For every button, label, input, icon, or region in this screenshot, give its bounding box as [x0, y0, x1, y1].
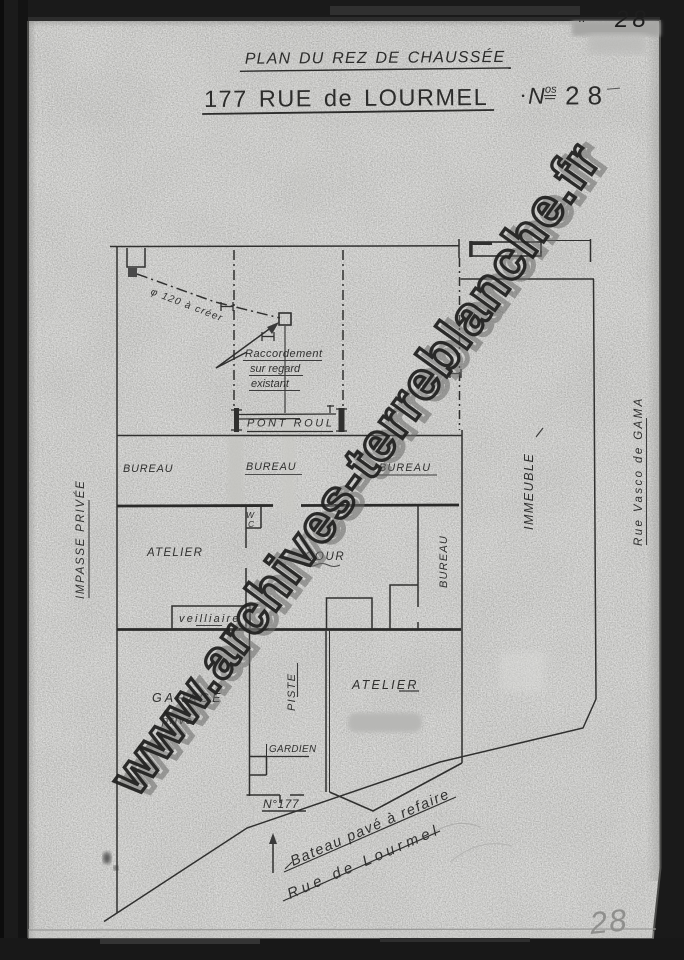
svg-text:IMPASSE PRIVÉE: IMPASSE PRIVÉE: [74, 480, 87, 599]
svg-text:GARDIEN: GARDIEN: [269, 744, 317, 755]
svg-text:28: 28: [565, 80, 610, 110]
svg-text:Raccordement: Raccordement: [245, 348, 323, 360]
svg-text:Rue Vasco de GAMA: Rue Vasco de GAMA: [633, 396, 645, 546]
svg-text:IMMEUBLE: IMMEUBLE: [522, 453, 536, 530]
svg-text:BUREAU: BUREAU: [123, 463, 173, 475]
svg-text:BUREAU: BUREAU: [246, 461, 296, 473]
svg-text:N: N: [528, 83, 545, 109]
svg-text:PISTE: PISTE: [286, 673, 298, 711]
svg-text:28: 28: [587, 902, 630, 941]
svg-text:sur regard: sur regard: [250, 363, 301, 375]
svg-text:N°177: N°177: [263, 797, 300, 811]
svg-text:existant: existant: [251, 378, 290, 390]
svg-text:C: C: [248, 519, 255, 529]
svg-text:BUREAU: BUREAU: [438, 535, 450, 588]
svg-text:ATELIER: ATELIER: [146, 547, 203, 559]
svg-text:PLAN DU REZ DE CHAUSSÉE: PLAN DU REZ DE CHAUSSÉE: [245, 47, 506, 68]
svg-text:PONT ROUL: PONT ROUL: [247, 418, 335, 430]
svg-text:28: 28: [614, 6, 650, 33]
svg-text:os: os: [545, 84, 557, 96]
svg-text:..: ..: [578, 10, 585, 25]
svg-text:ATELIER: ATELIER: [351, 678, 419, 692]
svg-text:177 RUE de LOURMEL: 177 RUE de LOURMEL: [204, 84, 488, 112]
